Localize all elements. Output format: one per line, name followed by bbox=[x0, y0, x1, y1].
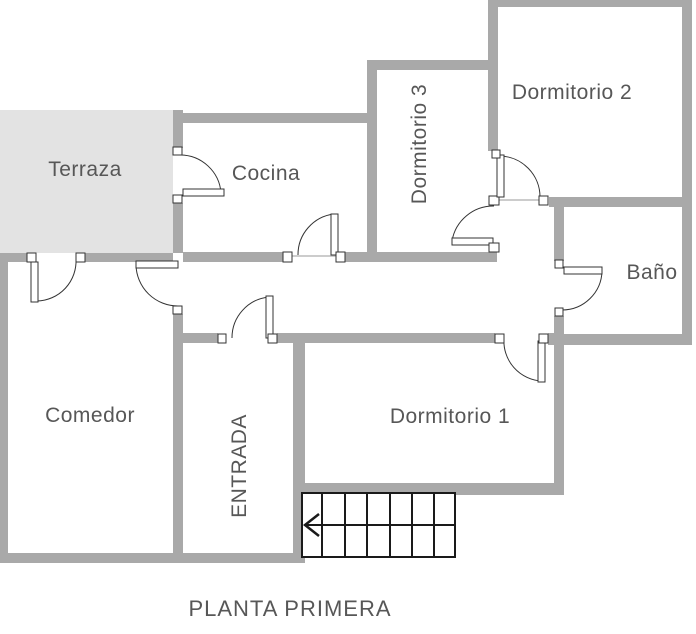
room-label-bano: Baño bbox=[626, 261, 677, 285]
door-comedor-hall bbox=[136, 261, 182, 314]
room-label-dormitorio2: Dormitorio 2 bbox=[512, 81, 632, 105]
plan-title: PLANTA PRIMERA bbox=[188, 596, 391, 622]
door-comedor-terraza bbox=[27, 253, 85, 302]
staircase bbox=[302, 493, 455, 557]
door-dormitorio3 bbox=[452, 196, 499, 252]
room-label-dormitorio3: Dormitorio 3 bbox=[408, 84, 432, 204]
room-label-dormitorio1: Dormitorio 1 bbox=[390, 405, 510, 429]
room-label-cocina: Cocina bbox=[232, 162, 300, 186]
door-bano bbox=[555, 260, 602, 316]
door-thresholds bbox=[292, 200, 540, 256]
room-label-terraza: Terraza bbox=[48, 158, 122, 182]
door-dormitorio1 bbox=[495, 334, 548, 382]
room-label-entrada: ENTRADA bbox=[228, 414, 252, 518]
door-entrada bbox=[218, 296, 277, 343]
door-dormitorio2 bbox=[492, 150, 548, 205]
floor-plan: Terraza Cocina Dormitorio 3 Dormitorio 2… bbox=[0, 0, 696, 634]
room-label-comedor: Comedor bbox=[45, 404, 135, 428]
door-cocina-hall bbox=[283, 214, 345, 262]
door-cocina-terraza bbox=[173, 147, 224, 203]
